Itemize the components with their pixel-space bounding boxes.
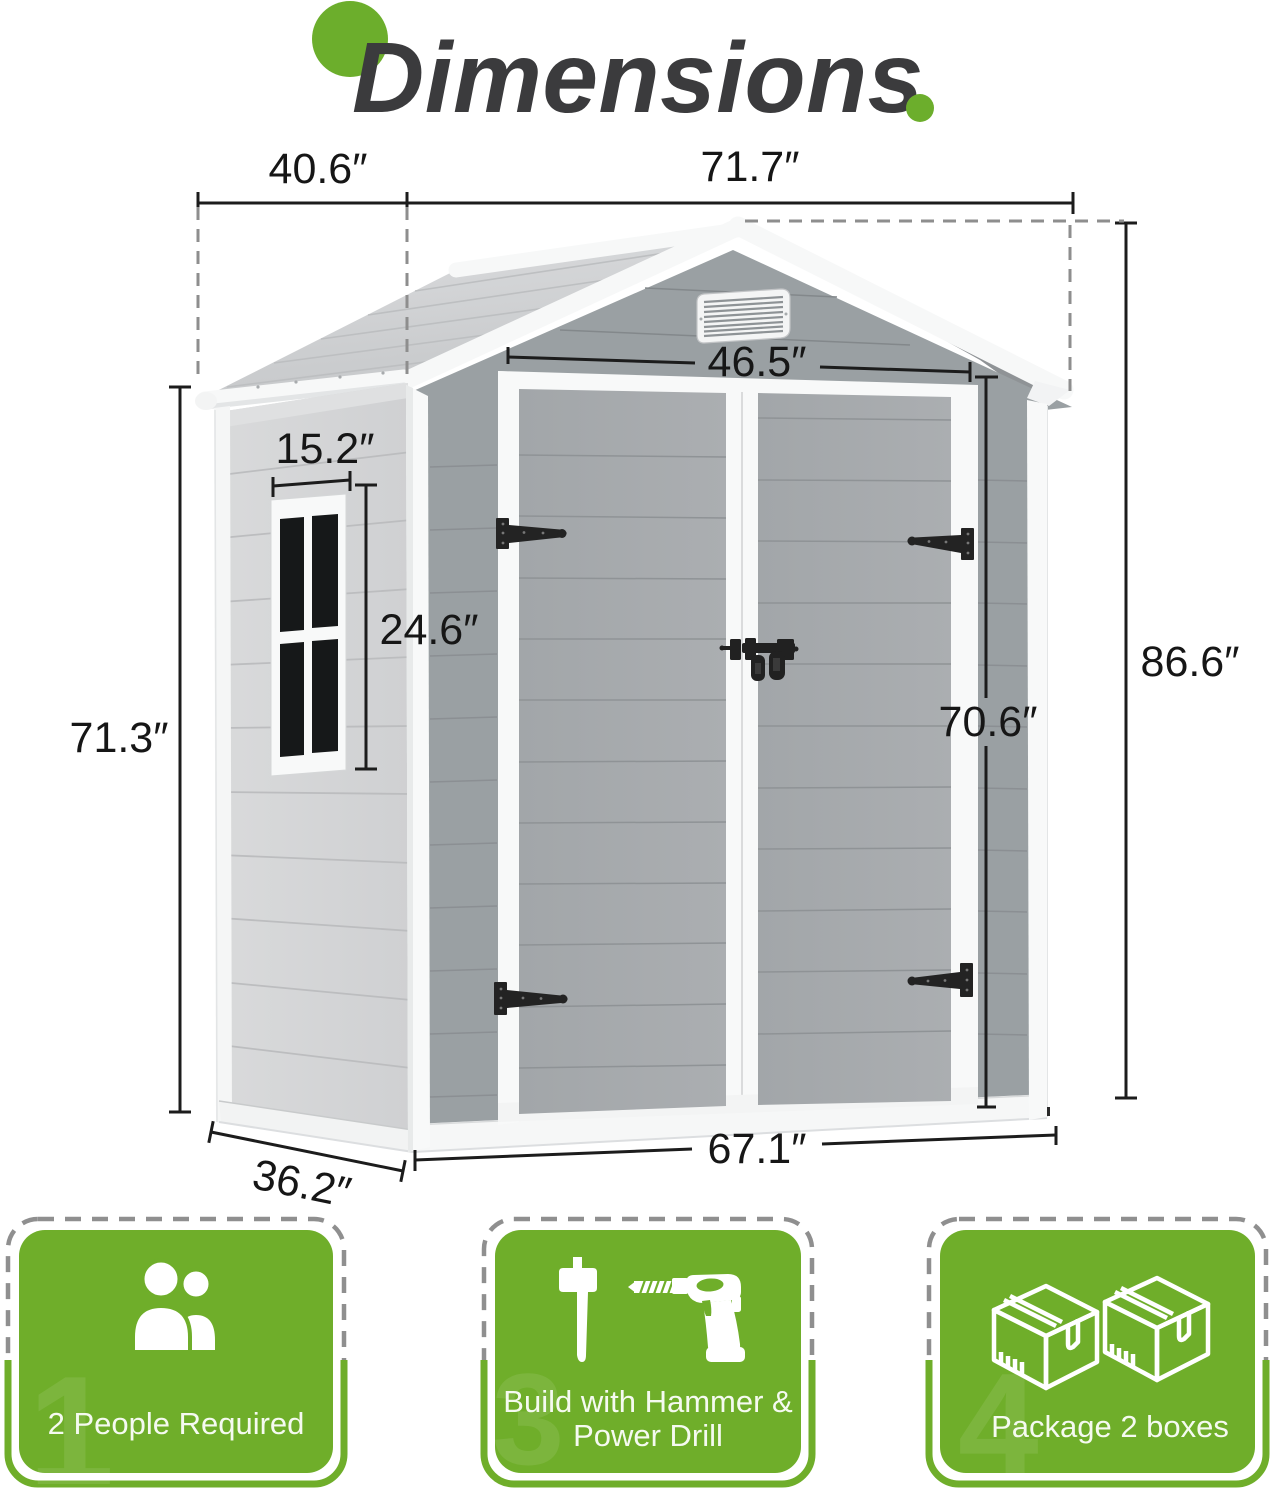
svg-text:Package 2 boxes: Package 2 boxes xyxy=(991,1409,1229,1444)
svg-text:Dimensions: Dimensions xyxy=(352,22,924,134)
svg-text:46.5″: 46.5″ xyxy=(708,338,807,386)
svg-text:15.2″: 15.2″ xyxy=(276,425,375,473)
svg-text:36.2″: 36.2″ xyxy=(249,1151,356,1218)
svg-text:2 People Required: 2 People Required xyxy=(48,1406,305,1441)
svg-text:40.6″: 40.6″ xyxy=(269,145,368,193)
svg-text:Power Drill: Power Drill xyxy=(573,1418,723,1453)
svg-text:67.1″: 67.1″ xyxy=(708,1125,807,1173)
svg-text:86.6″: 86.6″ xyxy=(1141,638,1240,686)
svg-text:24.6″: 24.6″ xyxy=(380,606,479,654)
svg-text:Build with Hammer &: Build with Hammer & xyxy=(503,1384,793,1419)
svg-text:71.7″: 71.7″ xyxy=(701,143,800,191)
svg-text:71.3″: 71.3″ xyxy=(70,714,169,762)
svg-text:3: 3 xyxy=(492,1346,564,1492)
svg-text:70.6″: 70.6″ xyxy=(939,698,1038,746)
